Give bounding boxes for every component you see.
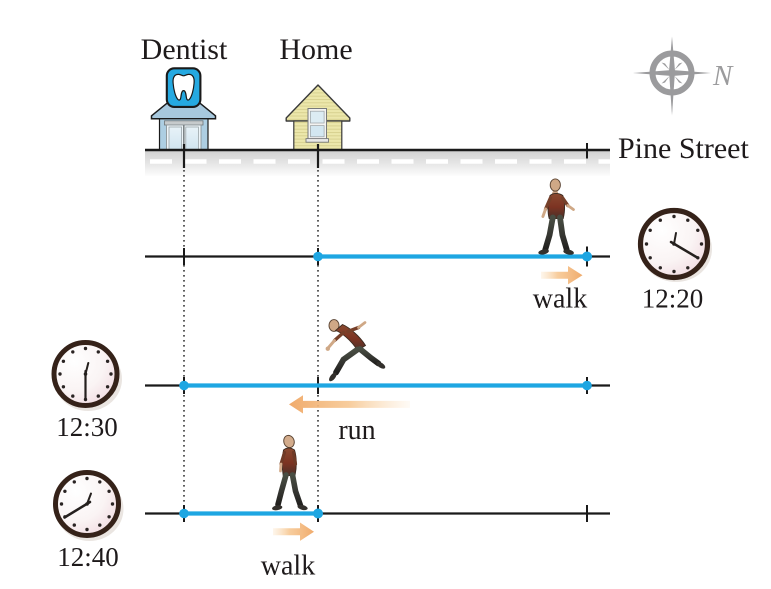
svg-text:Pine Street: Pine Street xyxy=(618,132,749,165)
svg-text:12:30: 12:30 xyxy=(56,412,118,442)
svg-text:12:40: 12:40 xyxy=(57,542,119,572)
svg-text:N: N xyxy=(712,60,734,92)
svg-text:Home: Home xyxy=(279,33,352,66)
svg-text:12:20: 12:20 xyxy=(642,284,704,314)
svg-text:Dentist: Dentist xyxy=(141,33,228,66)
svg-text:run: run xyxy=(338,415,375,446)
svg-text:walk: walk xyxy=(261,551,315,582)
svg-text:walk: walk xyxy=(533,284,587,315)
